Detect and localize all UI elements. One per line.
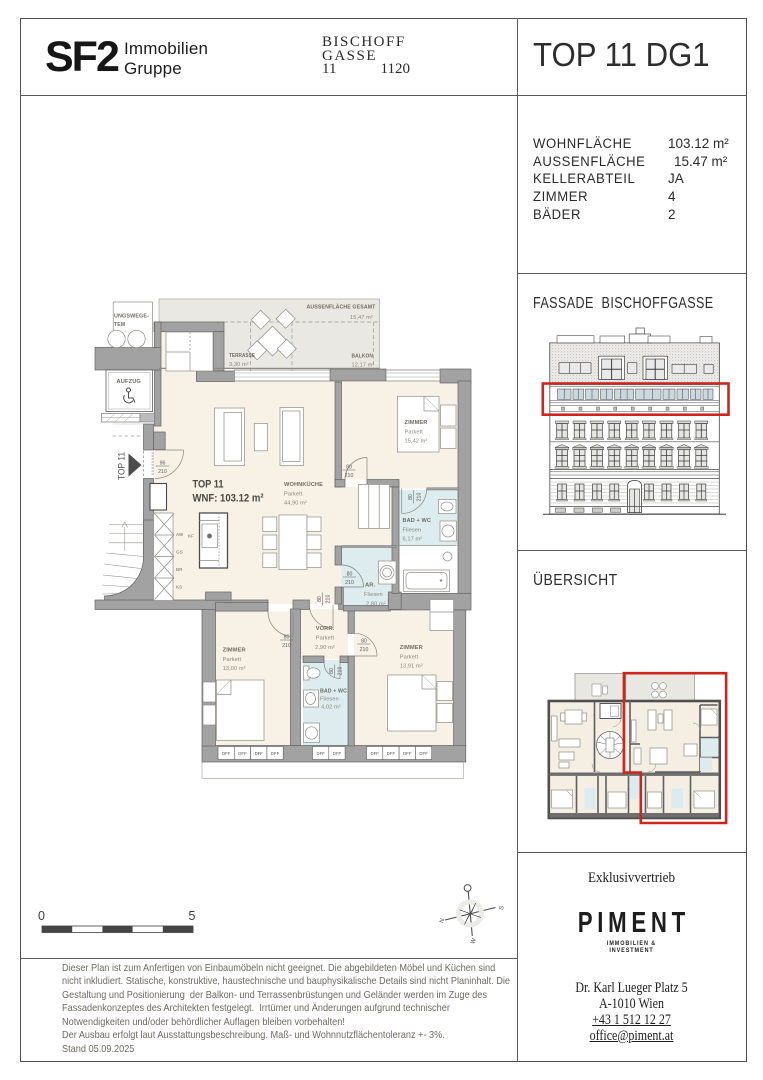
- svg-text:80: 80: [347, 572, 353, 578]
- svg-text:80: 80: [408, 494, 414, 500]
- svg-text:210: 210: [337, 667, 343, 676]
- svg-text:S: S: [499, 905, 506, 911]
- svg-text:AR.: AR.: [365, 583, 376, 589]
- svg-text:Parkett: Parkett: [405, 430, 424, 436]
- svg-text:KS: KS: [176, 585, 182, 590]
- svg-text:TERRASSE: TERRASSE: [229, 353, 255, 359]
- svg-text:TEM: TEM: [114, 322, 125, 328]
- svg-text:12,17 m²: 12,17 m²: [352, 363, 375, 369]
- svg-text:Parkett: Parkett: [223, 657, 242, 663]
- svg-text:13,91 m²: 13,91 m²: [400, 664, 423, 670]
- svg-text:2,80 m²: 2,80 m²: [366, 602, 386, 608]
- svg-text:TOP 11: TOP 11: [117, 452, 127, 480]
- svg-text:210: 210: [360, 647, 369, 653]
- svg-text:6,17 m²: 6,17 m²: [403, 537, 423, 543]
- svg-text:AW: AW: [176, 532, 184, 537]
- svg-text:DFF: DFF: [222, 751, 231, 756]
- svg-text:DFF: DFF: [370, 751, 379, 756]
- svg-text:ZIMMER: ZIMMER: [223, 648, 247, 654]
- svg-text:15,42 m²: 15,42 m²: [405, 439, 428, 445]
- svg-text:0: 0: [38, 909, 45, 923]
- svg-text:80: 80: [317, 596, 323, 602]
- svg-text:UNGSWEGE-: UNGSWEGE-: [114, 314, 149, 320]
- svg-text:Fliesen: Fliesen: [320, 697, 339, 703]
- svg-text:DFF: DFF: [333, 751, 342, 756]
- svg-text:2,90 m²: 2,90 m²: [315, 645, 335, 651]
- svg-text:3,30 m²: 3,30 m²: [229, 362, 249, 368]
- svg-text:Fliesen: Fliesen: [403, 528, 422, 534]
- svg-text:Parkett: Parkett: [284, 492, 303, 498]
- svg-text:96: 96: [160, 461, 166, 467]
- svg-text:BALKON: BALKON: [352, 354, 374, 360]
- svg-text:BR: BR: [176, 567, 183, 572]
- svg-text:Parkett: Parkett: [400, 655, 419, 661]
- svg-text:N: N: [439, 918, 446, 924]
- svg-text:80: 80: [346, 465, 352, 471]
- svg-text:VORR.: VORR.: [316, 626, 335, 632]
- svg-text:4,02 m²: 4,02 m²: [321, 705, 341, 711]
- svg-text:W: W: [470, 937, 478, 945]
- svg-text:DFF: DFF: [316, 751, 325, 756]
- svg-text:KF: KF: [188, 534, 194, 539]
- svg-text:15,47 m²: 15,47 m²: [350, 315, 373, 321]
- svg-text:80: 80: [284, 635, 290, 641]
- svg-text:5: 5: [189, 909, 196, 923]
- svg-text:BAD + WC: BAD + WC: [403, 518, 432, 524]
- svg-text:210: 210: [282, 643, 291, 649]
- svg-text:210: 210: [158, 469, 167, 475]
- svg-text:DFF: DFF: [255, 751, 264, 756]
- svg-text:ZIMMER: ZIMMER: [405, 420, 429, 426]
- svg-text:13,00 m²: 13,00 m²: [223, 666, 246, 672]
- svg-text:DFF: DFF: [387, 751, 396, 756]
- svg-text:210: 210: [416, 493, 422, 502]
- svg-text:210: 210: [325, 595, 331, 604]
- svg-text:ZIMMER: ZIMMER: [400, 645, 424, 651]
- svg-text:BAD + WC: BAD + WC: [320, 689, 347, 695]
- svg-text:AUFZUG: AUFZUG: [117, 379, 142, 385]
- svg-text:Fliesen: Fliesen: [364, 592, 383, 598]
- svg-text:TOP 11: TOP 11: [193, 479, 224, 491]
- svg-text:DFF: DFF: [271, 751, 280, 756]
- svg-text:DFF: DFF: [403, 751, 412, 756]
- svg-text:DFF: DFF: [419, 751, 428, 756]
- svg-text:210: 210: [345, 580, 354, 586]
- svg-text:DFF: DFF: [238, 751, 247, 756]
- svg-text:WOHNKÜCHE: WOHNKÜCHE: [284, 481, 323, 488]
- svg-text:80: 80: [361, 639, 367, 645]
- svg-text:44,90 m²: 44,90 m²: [284, 501, 307, 507]
- svg-text:80: 80: [329, 668, 335, 674]
- svg-text:WNF: 103.12 m²: WNF: 103.12 m²: [193, 493, 264, 505]
- svg-text:GS: GS: [176, 550, 183, 555]
- svg-text:AUSSENFLÄCHE GESAMT: AUSSENFLÄCHE GESAMT: [307, 304, 376, 311]
- svg-text:210: 210: [345, 473, 354, 479]
- svg-text:Parkett: Parkett: [316, 636, 335, 642]
